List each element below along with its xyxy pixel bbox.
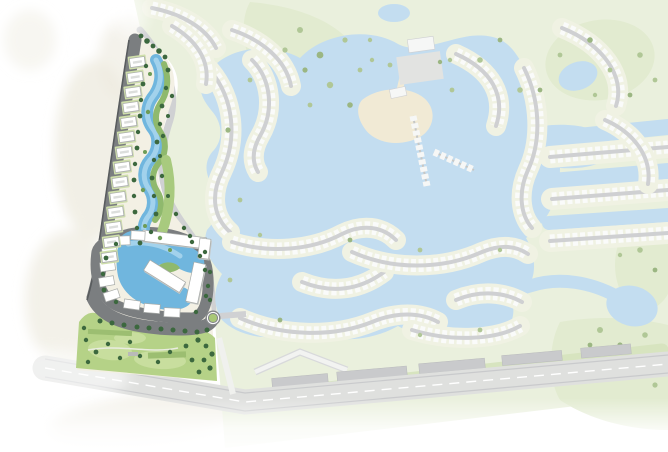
masterplan-map <box>0 0 668 452</box>
roundabout <box>206 311 221 326</box>
masterplan-canvas <box>0 0 668 452</box>
